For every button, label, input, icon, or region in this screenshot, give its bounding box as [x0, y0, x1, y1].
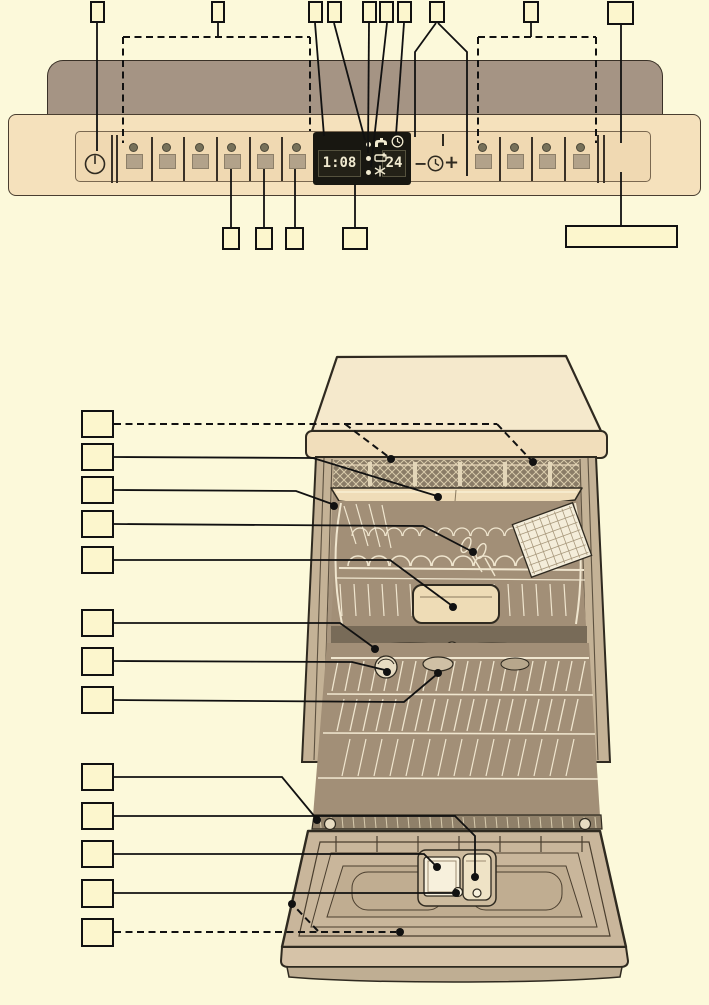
callout-box-left-2 [81, 443, 114, 471]
leader-line-left-9 [114, 777, 315, 817]
option-button-led-indicator [576, 143, 585, 152]
program-button-button-3 [192, 154, 209, 169]
callout-box-left-10 [81, 802, 114, 830]
option-button-button-2 [507, 154, 524, 169]
option-button-led-indicator [510, 143, 519, 152]
leader-dot-left-13 [396, 928, 404, 936]
separator-line [116, 135, 118, 183]
plus-label: + [444, 152, 458, 173]
program-button-button-4 [224, 154, 241, 169]
callout-box-left-9 [81, 763, 114, 791]
worktop-backsplash [47, 60, 663, 117]
leader-dot-left-6 [371, 645, 379, 653]
detergent-dispenser [418, 850, 496, 906]
callout-box-bottom-4 [342, 227, 368, 250]
callout-box-left-12 [81, 879, 114, 908]
callout-box-top-5 [362, 1, 377, 23]
minus-label: − [414, 154, 426, 173]
program-button-button-2 [159, 154, 176, 169]
rinse-aid-icon [374, 152, 388, 162]
upper-basket [331, 501, 592, 626]
leader-dot-left-8 [434, 669, 442, 677]
program-button-button-1 [126, 154, 143, 169]
callout-box-top-2 [211, 1, 225, 23]
callout-box-left-5 [81, 546, 114, 574]
separator-line [249, 137, 251, 181]
leader-dot-left-10 [471, 873, 479, 881]
salt-indicator-dot [366, 170, 371, 175]
dispenser-cap [454, 888, 463, 897]
door-front-edge [281, 947, 628, 967]
separator-line [531, 137, 533, 181]
separator-line [151, 137, 153, 181]
remaining-time-value: 1:08 [318, 150, 361, 177]
leader-line-left-6 [114, 623, 373, 647]
callout-box-left-11 [81, 840, 114, 868]
separator-line [564, 137, 566, 181]
cutlery-drawer [333, 460, 580, 488]
leader-dot-left-1 [387, 455, 395, 463]
option-button-led-indicator [542, 143, 551, 152]
worktop [306, 356, 607, 458]
option-button-led-indicator [478, 143, 487, 152]
callout-box-left-8 [81, 686, 114, 714]
manual-page: 1:08 24 − [0, 0, 709, 1005]
leader-line-left-4 [114, 524, 471, 551]
leader-line-left-3 [114, 490, 332, 504]
cutlery-items [459, 536, 495, 576]
leader-dot-left-7 [383, 668, 391, 676]
leader-line-left-1 [497, 424, 532, 461]
leader-dot-left-3 [330, 502, 338, 510]
separator-line [499, 137, 501, 181]
callout-box-left-1 [81, 410, 114, 438]
cutlery-drawer-front [331, 488, 582, 514]
power-button [83, 152, 107, 176]
callout-box-top-9 [523, 1, 539, 23]
callout-box-bottom-3 [285, 227, 304, 250]
callout-box-top-7 [397, 1, 412, 23]
option-button-button-3 [539, 154, 556, 169]
program-button-button-5 [257, 154, 274, 169]
callout-box-top-3 [308, 1, 323, 23]
rinse-aid-indicator-dot [366, 156, 371, 161]
leader-dot-left-9 [313, 816, 321, 824]
leader-dot-left-11 [433, 863, 441, 871]
lower-basket-front [312, 815, 602, 829]
separator-line [183, 137, 185, 181]
program-button-led-indicator [129, 143, 138, 152]
program-button-led-indicator [195, 143, 204, 152]
leader-line-left-10 [114, 816, 475, 874]
callout-box-top-1 [90, 1, 105, 23]
upper-basket-handle [413, 585, 499, 623]
control-panel: 1:08 24 − [8, 114, 701, 196]
lower-basket [312, 643, 602, 830]
separator-line [111, 135, 113, 183]
leader-line-left-8 [114, 675, 436, 702]
separator-line [597, 135, 599, 183]
tick-mark [442, 134, 444, 146]
leader-dot-left-5 [449, 603, 457, 611]
separator-line [281, 137, 283, 181]
leader-line-left-5 [114, 560, 451, 605]
water-tap-icon [374, 137, 388, 148]
tub [302, 457, 610, 762]
door [281, 831, 628, 982]
program-button-led-indicator [227, 143, 236, 152]
leader-dot-left-4 [469, 548, 477, 556]
callout-box-top-4 [327, 1, 342, 23]
option-button-button-4 [573, 154, 590, 169]
leader-line-left-11 [114, 854, 435, 865]
leader-line-left-1 [345, 424, 390, 458]
water-indicator-dot [366, 142, 371, 147]
callout-box-left-6 [81, 609, 114, 637]
rinse-aid-cap [473, 889, 481, 897]
leader-dot-left-13 [288, 900, 296, 908]
salt-refill-icon [374, 165, 386, 177]
rinse-aid-compartment [463, 854, 491, 900]
callout-box-top-6 [379, 1, 394, 23]
option-button-button-1 [475, 154, 492, 169]
leader-dot-left-12 [452, 889, 460, 897]
spray-arm [331, 626, 587, 655]
basket-wheel [580, 819, 591, 830]
callout-box-bottom-2 [255, 227, 273, 250]
callout-box-left-3 [81, 476, 114, 504]
callout-box-left-4 [81, 510, 114, 538]
callout-box-left-13 [81, 918, 114, 947]
callout-box-left-7 [81, 647, 114, 676]
basket-wheel [325, 819, 336, 830]
leader-dot-left-2 [434, 493, 442, 501]
detergent-chamber [424, 857, 460, 896]
leader-dot-left-1 [529, 458, 537, 466]
display: 1:08 24 [313, 132, 411, 185]
callout-box-top-10 [607, 1, 634, 25]
separator-line [216, 137, 218, 181]
cup-shelf-tray [512, 503, 591, 578]
callout-box-bottom-5 [565, 225, 678, 248]
program-button-led-indicator [260, 143, 269, 152]
leader-line-left-2 [114, 457, 437, 496]
clock-icon [391, 135, 404, 148]
callout-box-top-8 [429, 1, 445, 23]
callout-box-bottom-1 [222, 227, 240, 250]
timer-clock-icon [427, 155, 444, 172]
separator-line [603, 135, 605, 183]
program-button-button-6 [289, 154, 306, 169]
leader-line-left-7 [114, 661, 385, 670]
door-base [287, 967, 622, 982]
basket-items [375, 656, 529, 678]
leader-line-left-13 [295, 907, 318, 931]
program-button-led-indicator [162, 143, 171, 152]
program-button-led-indicator [292, 143, 301, 152]
